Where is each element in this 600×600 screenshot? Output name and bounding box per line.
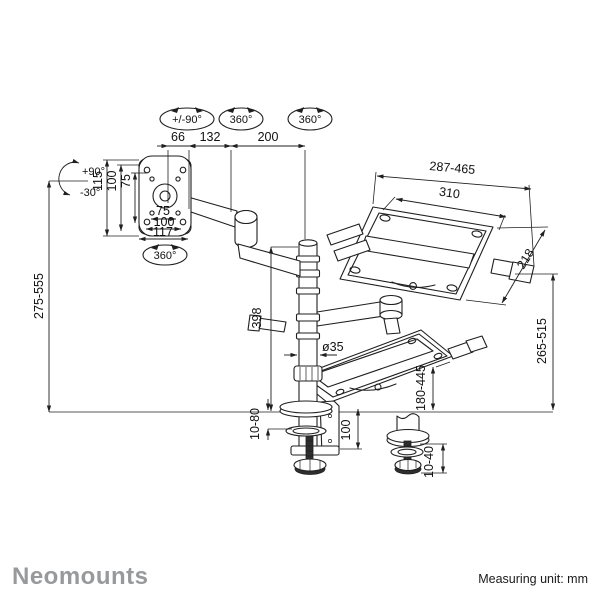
dim-o35: ø35: [322, 340, 344, 354]
dim-132: 132: [200, 130, 221, 144]
badge-pan-range: +/-90°: [160, 107, 214, 130]
badge-rotation-arm-label: 360°: [230, 114, 253, 126]
dim-265-515: 265-515: [535, 318, 549, 364]
dim-vesa-v75: 75: [119, 174, 133, 188]
dim-275-555: 275-555: [32, 273, 46, 319]
dim-398: 398: [250, 308, 264, 329]
brand-logo: Neomounts: [12, 563, 149, 590]
dim-310: 310: [438, 185, 461, 202]
technical-drawing: 66 132 200 115 100 75 75 100 117 275-555…: [0, 0, 600, 600]
dimension-layer: 66 132 200 115 100 75 75 100 117 275-555…: [32, 130, 558, 478]
dim-200: 200: [258, 130, 279, 144]
dim-100-clamp: 100: [339, 420, 353, 441]
badge-rotation-pole-label: 360°: [299, 114, 322, 126]
dim-66: 66: [171, 130, 185, 144]
desk-clamp: [280, 401, 339, 475]
measuring-unit-label: Measuring unit: mm: [478, 572, 588, 586]
tilt-up-label: +90°: [82, 166, 105, 178]
dim-10-80: 10-80: [248, 408, 262, 440]
badge-pan-label: +/-90°: [172, 114, 202, 126]
badge-rotation-vesa: 360°: [143, 244, 187, 265]
badge-rotation-arm: 360°: [219, 107, 263, 130]
laptop-tray-lower: [248, 315, 487, 403]
badge-rotation-pole: 360°: [288, 107, 332, 130]
dim-287-465: 287-465: [429, 159, 476, 177]
badge-rotation-vesa-label: 360°: [154, 250, 177, 262]
tilt-down-label: -30°: [80, 187, 100, 199]
dim-180-445: 180-445: [414, 365, 428, 411]
footer: Neomounts Measuring unit: mm: [12, 563, 588, 590]
dim-vesa-117: 117: [153, 225, 173, 239]
monitor-arm: [188, 197, 300, 276]
lower-arm: [317, 296, 402, 335]
dim-10-40: 10-40: [422, 446, 436, 478]
pole-adjust-knob: [294, 366, 322, 381]
dim-vesa-v100: 100: [105, 171, 119, 192]
